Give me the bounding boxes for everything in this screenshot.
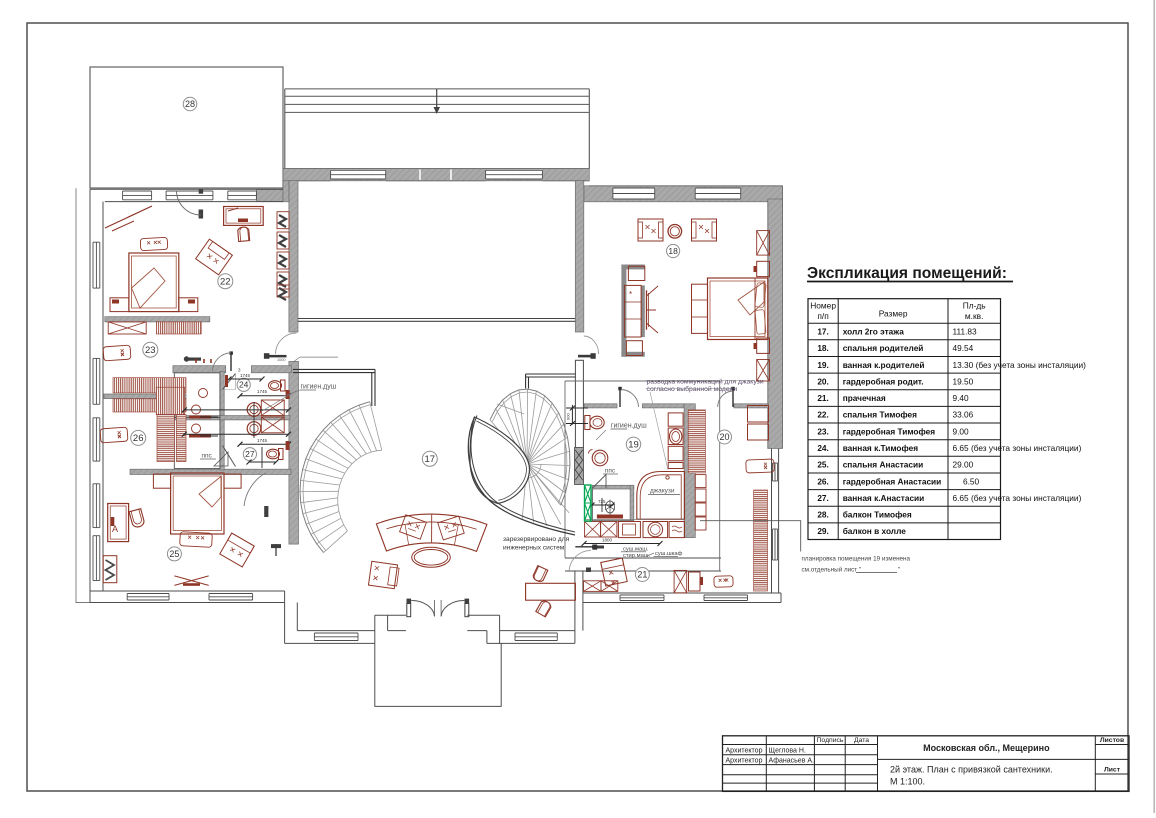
svg-text:19.: 19. [817,360,829,370]
svg-text:29.00: 29.00 [953,460,974,470]
svg-text:Номер: Номер [810,301,836,311]
svg-text:23.: 23. [817,426,829,436]
svg-text:согласно выбранной модели: согласно выбранной модели [647,385,738,393]
svg-text:24: 24 [239,380,249,390]
svg-text:27: 27 [245,449,255,459]
svg-text:": " [898,567,900,574]
svg-text:26.: 26. [817,476,829,486]
svg-text:19.50: 19.50 [953,376,974,386]
svg-text:гардеробная Тимофея: гардеробная Тимофея [843,426,936,436]
svg-text:Пл-дь: Пл-дь [963,301,987,311]
svg-text:инженерных систем: инженерных систем [503,545,565,552]
svg-text:ванная к.Анастасии: ванная к.Анастасии [843,493,925,503]
svg-text:прачечная: прачечная [843,393,886,403]
svg-text:спальня Тимофея: спальня Тимофея [843,410,917,420]
svg-text:111.83: 111.83 [953,327,978,337]
svg-text:ванная к.Тимофея: ванная к.Тимофея [843,443,919,453]
svg-text:1745: 1745 [257,438,268,443]
svg-text:*: * [629,290,632,299]
svg-text:зарезервировано для: зарезервировано для [503,536,570,543]
svg-text:21: 21 [637,570,647,580]
svg-text:1745: 1745 [257,389,268,394]
svg-text:м.кв.: м.кв. [965,311,984,321]
svg-text:1000: 1000 [277,358,285,362]
svg-text:спальня родителей: спальня родителей [843,343,924,353]
svg-text:19: 19 [628,440,639,451]
svg-text:Щеглова Н.: Щеглова Н. [769,748,806,755]
svg-text:Листов: Листов [1100,737,1124,744]
svg-text:18: 18 [668,246,678,256]
svg-text:29.: 29. [817,526,829,536]
svg-text:28.: 28. [817,510,829,520]
svg-text:20.: 20. [817,376,829,386]
svg-text:A: A [112,524,118,534]
svg-text:гардеробная Анастасии: гардеробная Анастасии [843,476,942,486]
svg-text:гигиен.душ: гигиен.душ [301,384,337,391]
svg-text:балкон Тимофея: балкон Тимофея [843,510,912,520]
svg-text:см.отдельный лист ": см.отдельный лист " [802,566,862,574]
svg-text:2й этаж. План с привязкой сант: 2й этаж. План с привязкой сантехники. [890,765,1053,775]
svg-text:ппс: ппс [605,468,616,475]
svg-text:20: 20 [719,432,729,442]
svg-text:спальня Анастасии: спальня Анастасии [843,460,924,470]
svg-text:Подпись: Подпись [817,737,844,744]
svg-text:1800: 1800 [602,538,613,543]
svg-text:холл 2го этажа: холл 2го этажа [843,327,905,337]
svg-text:ппс: ппс [202,453,213,460]
svg-text:гигиен.душ: гигиен.душ [611,423,647,430]
svg-text:49.54: 49.54 [953,343,974,353]
svg-text:гардеробная родит.: гардеробная родит. [843,376,924,386]
svg-text:Московская обл., Мещерино: Московская обл., Мещерино [923,743,1050,753]
svg-text:М 1:100.: М 1:100. [890,777,925,787]
svg-text:Архитектор: Архитектор [726,748,763,755]
svg-text:9.40: 9.40 [953,393,970,403]
svg-text:Размер: Размер [879,309,908,319]
svg-text:24.: 24. [817,443,829,453]
svg-text:25: 25 [169,549,179,559]
svg-text:33.06: 33.06 [953,410,974,420]
svg-text:6.65 (без учета зоны инсталяци: 6.65 (без учета зоны инсталяции) [953,443,1082,453]
svg-text:25.: 25. [817,460,829,470]
svg-text:разводка коммуникаций для джак: разводка коммуникаций для джакузи [647,377,764,385]
svg-text:26: 26 [133,433,144,444]
svg-text:1745: 1745 [240,373,251,378]
svg-text:Дата: Дата [854,737,869,744]
svg-text:Архитектор: Архитектор [726,757,763,764]
svg-text:Экспликация помещений:: Экспликация помещений: [807,265,1007,282]
svg-text:Афанасьев А.: Афанасьев А. [769,757,815,764]
svg-text:17: 17 [425,454,436,465]
svg-text:900: 900 [566,413,571,420]
svg-text:13.30 (без учета зоны инсталяц: 13.30 (без учета зоны инсталяции) [953,360,1087,370]
svg-text:планировка помещения 19 измен: планировка помещения 19 изменена [802,556,911,563]
svg-text:17.: 17. [817,327,829,337]
svg-text:22.: 22. [817,410,829,420]
svg-text:балкон в холле: балкон в холле [843,526,907,536]
svg-text:23: 23 [145,345,156,356]
svg-text:9.00: 9.00 [953,426,970,436]
svg-text:п/п: п/п [817,311,828,321]
svg-text:6.50: 6.50 [963,476,980,486]
svg-text:27.: 27. [817,493,829,503]
svg-text:22: 22 [220,276,231,287]
svg-text:21.: 21. [817,393,829,403]
svg-text:18.: 18. [817,343,829,353]
svg-text:Лист: Лист [1104,766,1121,773]
svg-text:ванная к.родителей: ванная к.родителей [843,360,925,370]
svg-text:6.65 (без учета зоны инсталяци: 6.65 (без учета зоны инсталяции) [953,493,1082,503]
svg-text:джакузи: джакузи [650,488,675,495]
svg-text:28: 28 [185,99,195,109]
